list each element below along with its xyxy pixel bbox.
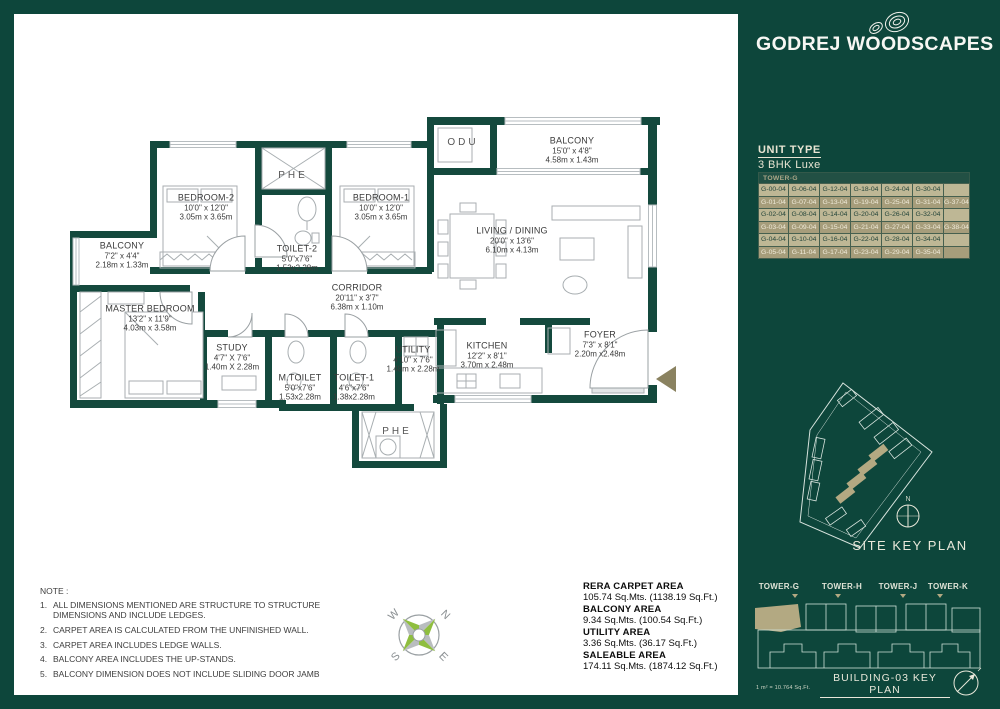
room-name: M.TOILET <box>279 372 322 383</box>
unit-cell: G-29-04 <box>882 247 913 260</box>
entry-arrow-icon <box>656 366 676 392</box>
room-label-bedroom-2: BEDROOM-210'0" x 12'0"3.05m x 3.65m <box>178 192 234 221</box>
room-dim-m: 1.38x2.28m <box>333 392 375 401</box>
unit-cell: G-08-04 <box>789 209 820 222</box>
floorplan-page: W N S E BEDROOM-210'0" x 12'0"3.05m x 3.… <box>0 0 1000 709</box>
room-dim-ft: 12'2" x 8'1" <box>461 351 514 360</box>
unit-cell: G-10-04 <box>789 234 820 247</box>
area-summary: RERA CARPET AREA105.74 Sq.Mts. (1138.19 … <box>583 581 743 673</box>
room-dim-ft: 7'2" x 4'4" <box>96 251 149 260</box>
unit-cell: G-30-04 <box>913 183 944 197</box>
unit-table-row: G-01-04G-07-04G-13-04G-19-04G-25-04G-31-… <box>758 197 970 210</box>
unit-cell: G-31-04 <box>913 197 944 210</box>
room-label-phe-top: PHE <box>278 170 308 182</box>
svg-text:S: S <box>389 650 403 664</box>
room-dim-ft: 13'2" x 11'9" <box>105 314 194 323</box>
unit-cell: G-24-04 <box>882 183 913 197</box>
room-label-bedroom-1: BEDROOM-110'0" x 12'0"3.05m x 3.65m <box>353 192 409 221</box>
unit-cell: G-13-04 <box>820 197 851 210</box>
room-dim-m: 2.20m x2.48m <box>575 349 626 358</box>
area-label: SALEABLE AREA <box>583 650 743 661</box>
unit-cell: G-33-04 <box>913 222 944 235</box>
unit-cell: G-23-04 <box>851 247 882 260</box>
room-name: FOYER <box>575 329 626 340</box>
area-label: UTILITY AREA <box>583 627 743 638</box>
unit-cell: G-21-04 <box>851 222 882 235</box>
room-name: BALCONY <box>96 240 149 251</box>
room-dim-m: 6.38m x 1.10m <box>331 302 384 311</box>
room-name: PHE <box>382 426 412 438</box>
unit-cell: G-12-04 <box>820 183 851 197</box>
room-label-kitchen: KITCHEN12'2" x 8'1"3.70m x 2.48m <box>461 340 514 369</box>
room-dim-ft: 5'0"x7'6" <box>279 383 322 392</box>
note-item: 3.CARPET AREA INCLUDES LEDGE WALLS. <box>40 640 325 651</box>
unit-cell: G-37-04 <box>944 197 970 210</box>
room-dim-m: 1.48m x 2.28m <box>387 364 440 373</box>
unit-cell: G-16-04 <box>820 234 851 247</box>
unit-cell: G-14-04 <box>820 209 851 222</box>
room-dim-ft: 10'0" x 12'0" <box>178 203 234 212</box>
room-dim-m: 1.53x2.28m <box>279 392 322 401</box>
unit-cell <box>944 209 970 222</box>
unit-table-row: G-02-04G-08-04G-14-04G-20-04G-26-04G-32-… <box>758 209 970 222</box>
area-label: RERA CARPET AREA <box>583 581 743 592</box>
room-label-living-dining: LIVING / DINING20'0" x 13'6"6.10m x 4.13… <box>476 225 548 254</box>
room-name: TOILET-2 <box>276 243 318 254</box>
room-dim-m: 3.05m x 3.65m <box>353 212 409 221</box>
room-dim-ft: 20'0" x 13'6" <box>476 236 548 245</box>
room-label-m-toilet: M.TOILET5'0"x7'6"1.53x2.28m <box>279 372 322 401</box>
unit-cell: G-05-04 <box>758 247 789 260</box>
unit-cell: G-03-04 <box>758 222 789 235</box>
unit-cell: G-15-04 <box>820 222 851 235</box>
room-label-balcony-top: BALCONY15'0" x 4'8"4.58m x 1.43m <box>546 135 599 164</box>
room-label-phe-bottom: PHE <box>382 426 412 438</box>
room-label-foyer: FOYER7'3" x 8'1"2.20m x2.48m <box>575 329 626 358</box>
room-dim-m: 3.70m x 2.48m <box>461 360 514 369</box>
room-label-master-bedroom: MASTER BEDROOM13'2" x 11'9"4.03m x 3.58m <box>105 303 194 332</box>
room-label-study: STUDY4'7" X 7'6"1.40m X 2.28m <box>205 342 259 371</box>
unit-cell: G-28-04 <box>882 234 913 247</box>
room-dim-ft: 4'7" X 7'6" <box>205 353 259 362</box>
unit-cell <box>944 234 970 247</box>
unit-type-label: UNIT TYPE <box>758 144 821 158</box>
unit-table-row: G-04-04G-10-04G-16-04G-22-04G-28-04G-34-… <box>758 234 970 247</box>
brand-logo-text: GODREJ WOODSCAPES <box>756 33 992 56</box>
unit-cell: G-01-04 <box>758 197 789 210</box>
room-dim-m: 4.03m x 3.58m <box>105 323 194 332</box>
unit-cell: G-09-04 <box>789 222 820 235</box>
room-name: STUDY <box>205 342 259 353</box>
room-name: LIVING / DINING <box>476 225 548 236</box>
room-dim-ft: 4'6"x7'6" <box>333 383 375 392</box>
unit-cell: G-20-04 <box>851 209 882 222</box>
unit-cell: G-00-04 <box>758 183 789 197</box>
room-label-balcony-left: BALCONY7'2" x 4'4"2.18m x 1.33m <box>96 240 149 269</box>
unit-cell: G-06-04 <box>789 183 820 197</box>
room-label-toilet-1: TOILET-14'6"x7'6"1.38x2.28m <box>333 372 375 401</box>
room-dim-ft: 15'0" x 4'8" <box>546 146 599 155</box>
unit-cell: G-17-04 <box>820 247 851 260</box>
room-dim-ft: 4'10" x 7'6" <box>387 355 440 364</box>
room-dim-ft: 10'0" x 12'0" <box>353 203 409 212</box>
room-name: CORRIDOR <box>331 282 384 293</box>
tower-labels: TOWER-GTOWER-HTOWER-JTOWER-K <box>750 582 1000 600</box>
room-name: KITCHEN <box>461 340 514 351</box>
area-label: BALCONY AREA <box>583 604 743 615</box>
tower-label-tower-g: TOWER-G <box>759 582 800 591</box>
unit-cell: G-04-04 <box>758 234 789 247</box>
room-dim-m: 1.53x2.28m <box>276 263 318 272</box>
unit-table: TOWER-G G-00-04G-06-04G-12-04G-18-04G-24… <box>758 172 970 259</box>
unit-table-row: G-05-04G-11-04G-17-04G-23-04G-29-04G-35-… <box>758 247 970 260</box>
room-name: ODU <box>447 137 478 149</box>
room-name: UTILITY <box>387 344 440 355</box>
room-dim-m: 1.40m X 2.28m <box>205 362 259 371</box>
notes-title: NOTE : <box>40 586 325 597</box>
room-dim-m: 6.10m x 4.13m <box>476 245 548 254</box>
svg-text:E: E <box>436 650 450 664</box>
unit-cell: G-19-04 <box>851 197 882 210</box>
unit-cell <box>944 183 970 197</box>
area-value: 3.36 Sq.Mts. (36.17 Sq.Ft.) <box>583 638 743 649</box>
room-name: BEDROOM-2 <box>178 192 234 203</box>
unit-table-row: G-03-04G-09-04G-15-04G-21-04G-27-04G-33-… <box>758 222 970 235</box>
room-label-odu: ODU <box>447 137 478 149</box>
unit-cell: G-27-04 <box>882 222 913 235</box>
note-item: 4.BALCONY AREA INCLUDES THE UP-STANDS. <box>40 654 325 665</box>
unit-table-header: TOWER-G <box>758 172 970 183</box>
room-name: PHE <box>278 170 308 182</box>
compass-rose-icon: W N S E <box>386 602 452 667</box>
unit-cell: G-38-04 <box>944 222 970 235</box>
room-label-corridor: CORRIDOR20'11" x 3'7"6.38m x 1.10m <box>331 282 384 311</box>
svg-text:W: W <box>386 607 402 623</box>
unit-cell: G-02-04 <box>758 209 789 222</box>
unit-table-row: G-00-04G-06-04G-12-04G-18-04G-24-04G-30-… <box>758 183 970 197</box>
tower-marker-icon <box>792 594 798 598</box>
unit-cell: G-11-04 <box>789 247 820 260</box>
tower-label-tower-h: TOWER-H <box>822 582 862 591</box>
room-name: MASTER BEDROOM <box>105 303 194 314</box>
room-name: BEDROOM-1 <box>353 192 409 203</box>
unit-cell: G-34-04 <box>913 234 944 247</box>
unit-cell: G-32-04 <box>913 209 944 222</box>
unit-cell: G-35-04 <box>913 247 944 260</box>
tower-label-tower-k: TOWER-K <box>928 582 968 591</box>
unit-type-value: 3 BHK Luxe <box>758 159 821 171</box>
room-name: BALCONY <box>546 135 599 146</box>
area-value: 9.34 Sq.Mts. (100.54 Sq.Ft.) <box>583 615 743 626</box>
unit-cell: G-22-04 <box>851 234 882 247</box>
note-item: 2.CARPET AREA IS CALCULATED FROM THE UNF… <box>40 625 325 636</box>
room-label-utility: UTILITY4'10" x 7'6"1.48m x 2.28m <box>387 344 440 373</box>
unit-cell: G-07-04 <box>789 197 820 210</box>
site-key-plan-title: SITE KEY PLAN <box>840 538 980 553</box>
room-dim-m: 4.58m x 1.43m <box>546 155 599 164</box>
unit-cell: G-25-04 <box>882 197 913 210</box>
building-key-plan-title: BUILDING-03 KEY PLAN <box>820 672 950 698</box>
notes-block: NOTE : 1.ALL DIMENSIONS MENTIONED ARE ST… <box>40 586 325 683</box>
tower-marker-icon <box>937 594 943 598</box>
room-dim-ft: 5'0"x7'6" <box>276 254 318 263</box>
room-label-toilet-2: TOILET-25'0"x7'6"1.53x2.28m <box>276 243 318 272</box>
area-value: 105.74 Sq.Mts. (1138.19 Sq.Ft.) <box>583 592 743 603</box>
area-value: 174.11 Sq.Mts. (1874.12 Sq.Ft.) <box>583 661 743 672</box>
tower-marker-icon <box>900 594 906 598</box>
note-item: 5.BALCONY DIMENSION DOES NOT INCLUDE SLI… <box>40 669 325 680</box>
unit-cell: G-26-04 <box>882 209 913 222</box>
room-dim-m: 3.05m x 3.65m <box>178 212 234 221</box>
room-dim-ft: 20'11" x 3'7" <box>331 293 384 302</box>
unit-cell: G-18-04 <box>851 183 882 197</box>
room-name: TOILET-1 <box>333 372 375 383</box>
tower-marker-icon <box>835 594 841 598</box>
note-item: 1.ALL DIMENSIONS MENTIONED ARE STRUCTURE… <box>40 600 325 621</box>
tower-label-tower-j: TOWER-J <box>879 582 918 591</box>
svg-text:N: N <box>438 608 452 622</box>
unit-cell <box>944 247 970 260</box>
scale-note: 1 m² = 10.764 Sq.Ft. <box>756 685 810 691</box>
room-dim-ft: 7'3" x 8'1" <box>575 340 626 349</box>
room-dim-m: 2.18m x 1.33m <box>96 260 149 269</box>
